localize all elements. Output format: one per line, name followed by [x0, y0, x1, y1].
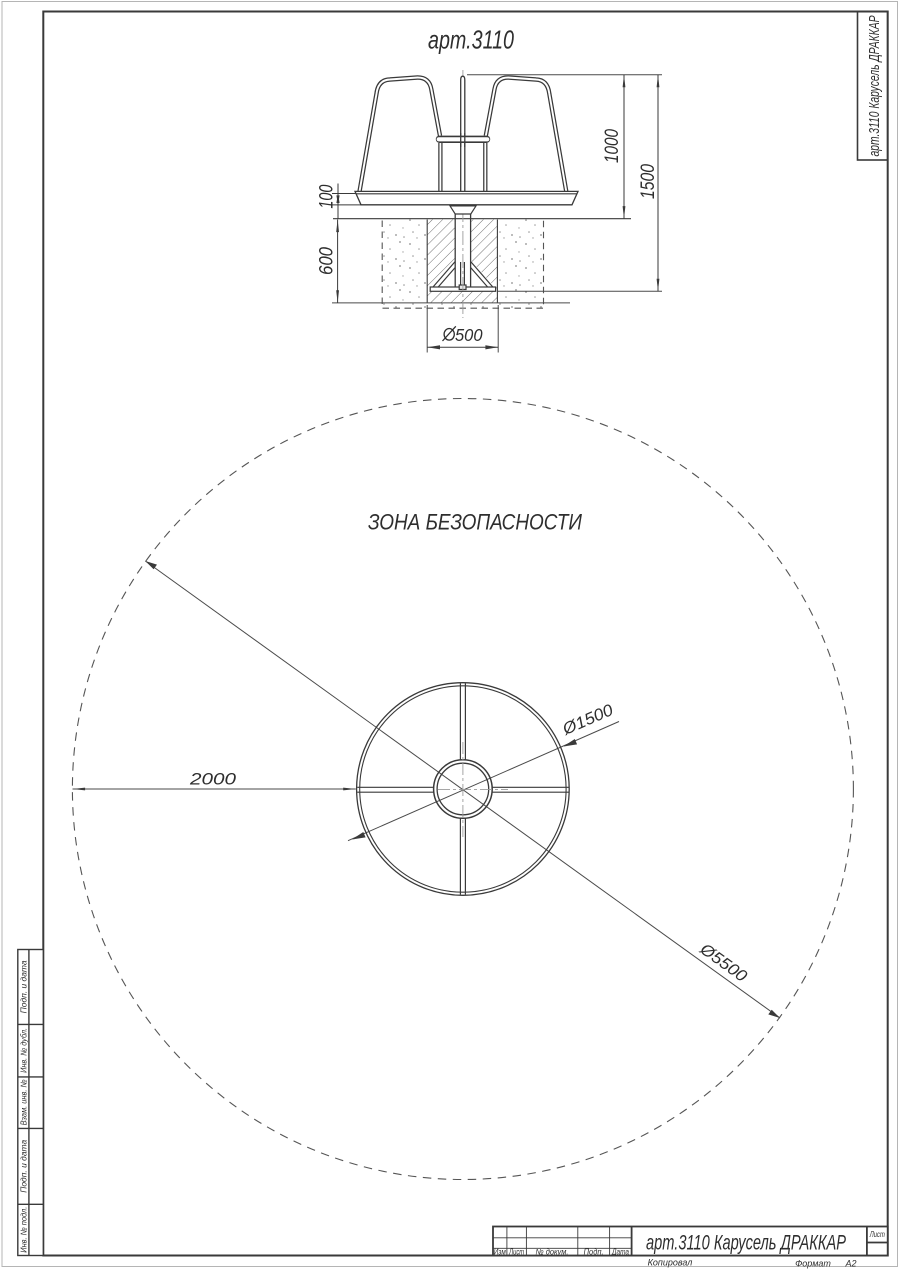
svg-text:2000: 2000 [189, 770, 237, 789]
svg-text:Подп. и дата: Подп. и дата [18, 960, 28, 1013]
svg-text:Инв. № подл.: Инв. № подл. [18, 1207, 28, 1253]
svg-text:арт.3110 Карусель ДРАККАР: арт.3110 Карусель ДРАККАР [867, 15, 883, 156]
svg-text:Формат: Формат [795, 1259, 831, 1269]
svg-text:А2: А2 [844, 1259, 856, 1269]
svg-text:Инв. № дубл.: Инв. № дубл. [18, 1028, 28, 1073]
svg-text:1000: 1000 [602, 129, 623, 163]
svg-text:№ докум.: № докум. [536, 1247, 569, 1256]
svg-text:100: 100 [317, 184, 338, 208]
svg-text:Дата: Дата [611, 1247, 629, 1256]
svg-text:арт.3110 Карусель ДРАККАР: арт.3110 Карусель ДРАККАР [646, 1231, 846, 1255]
svg-text:Ø1500: Ø1500 [559, 701, 617, 739]
svg-text:1500: 1500 [638, 164, 659, 199]
svg-text:600: 600 [317, 247, 338, 275]
svg-text:Подп. и дата: Подп. и дата [18, 1140, 28, 1193]
svg-text:Изм: Изм [494, 1247, 506, 1256]
svg-text:Лист: Лист [508, 1247, 524, 1256]
svg-text:Подп.: Подп. [584, 1247, 604, 1256]
svg-text:арт.3110: арт.3110 [428, 25, 514, 55]
svg-text:Копировал: Копировал [648, 1258, 693, 1268]
svg-text:Взам. инв. №: Взам. инв. № [18, 1079, 28, 1125]
svg-text:ЗОНА БЕЗОПАСНОСТИ: ЗОНА БЕЗОПАСНОСТИ [368, 510, 582, 535]
svg-text:500: 500 [455, 325, 483, 345]
svg-text:Лист: Лист [869, 1230, 885, 1239]
